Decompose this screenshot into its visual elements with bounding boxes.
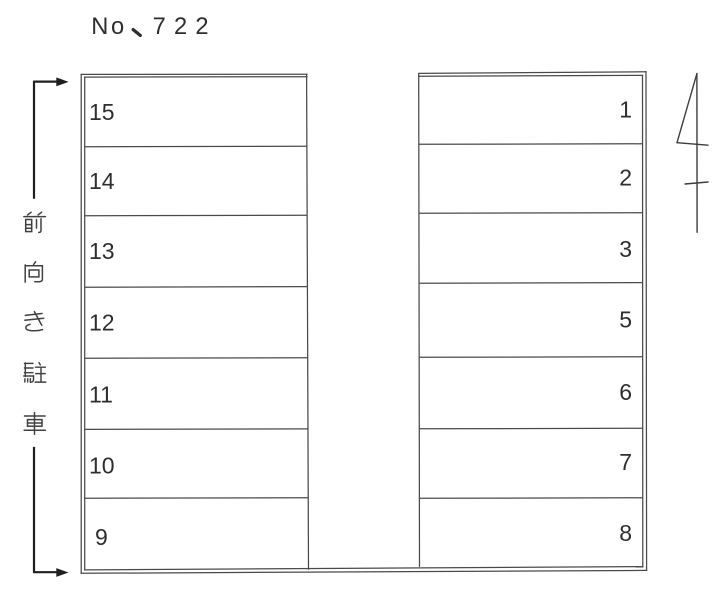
- svg-text:5: 5: [619, 307, 632, 333]
- svg-text:15: 15: [89, 99, 115, 125]
- svg-text:6: 6: [619, 379, 632, 405]
- svg-text:722: 722: [153, 14, 217, 40]
- svg-text:11: 11: [89, 381, 113, 407]
- svg-text:12: 12: [89, 309, 115, 335]
- svg-text:3: 3: [619, 236, 632, 262]
- svg-text:2: 2: [619, 165, 632, 191]
- svg-text:9: 9: [95, 524, 108, 550]
- svg-text:13: 13: [89, 238, 115, 264]
- svg-text:10: 10: [89, 452, 115, 478]
- svg-text:8: 8: [619, 520, 632, 546]
- svg-text:14: 14: [89, 168, 115, 194]
- svg-text:1: 1: [619, 96, 632, 122]
- svg-text:No: No: [91, 14, 126, 40]
- svg-text:7: 7: [619, 449, 632, 475]
